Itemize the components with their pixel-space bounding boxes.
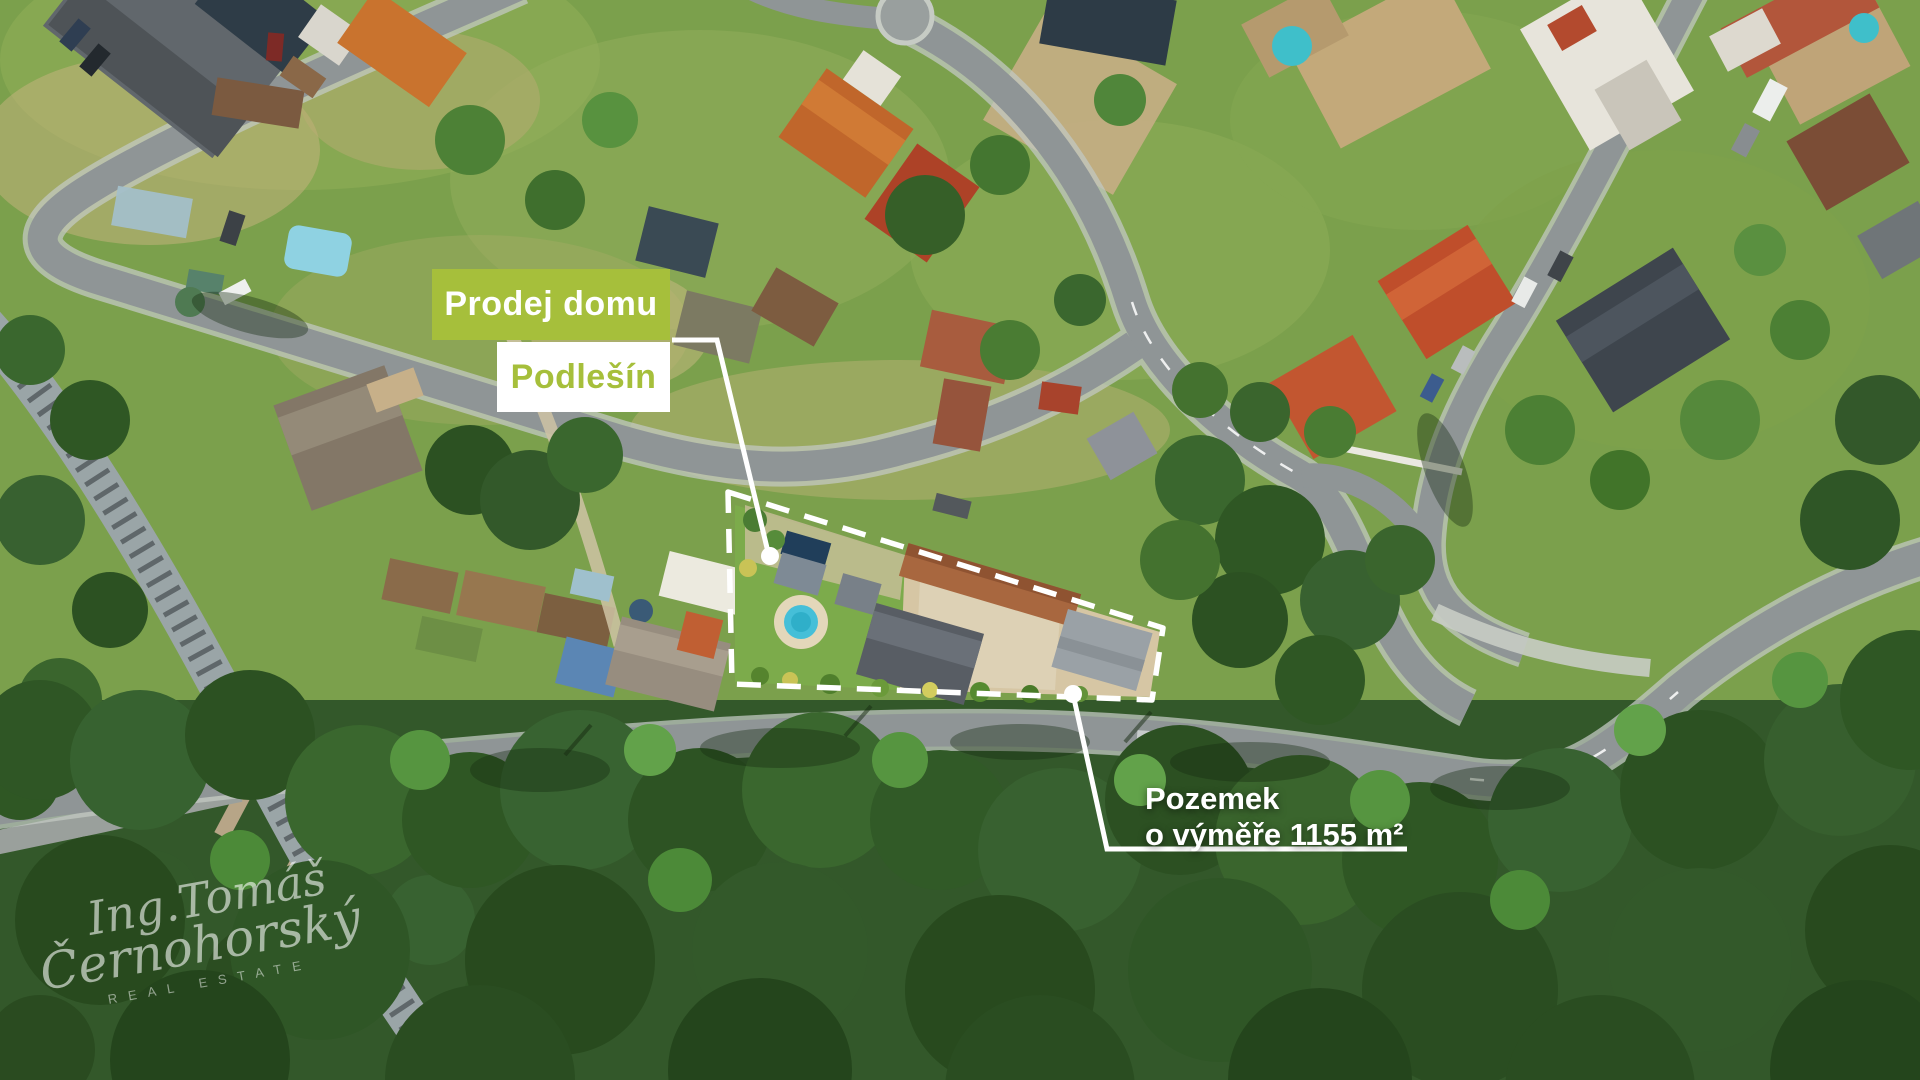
area-label: Pozemek o výměře 1155 m² [1145, 781, 1404, 853]
area-label-line2: o výměře 1155 m² [1145, 817, 1404, 853]
area-label-line1: Pozemek [1145, 781, 1404, 817]
marker-dot-sale [761, 547, 779, 565]
leader-line-sale [672, 340, 768, 552]
location-label-text: Podlešín [511, 358, 657, 397]
sale-label-text: Prodej domu [444, 285, 657, 324]
real-estate-aerial-photo: Prodej domu Podlešín Pozemek o výměře 11… [0, 0, 1920, 1080]
property-outline [728, 492, 1163, 700]
property-annotations [0, 0, 1920, 1080]
location-label: Podlešín [497, 342, 670, 412]
sale-label: Prodej domu [432, 269, 670, 340]
marker-dot-area [1064, 685, 1082, 703]
